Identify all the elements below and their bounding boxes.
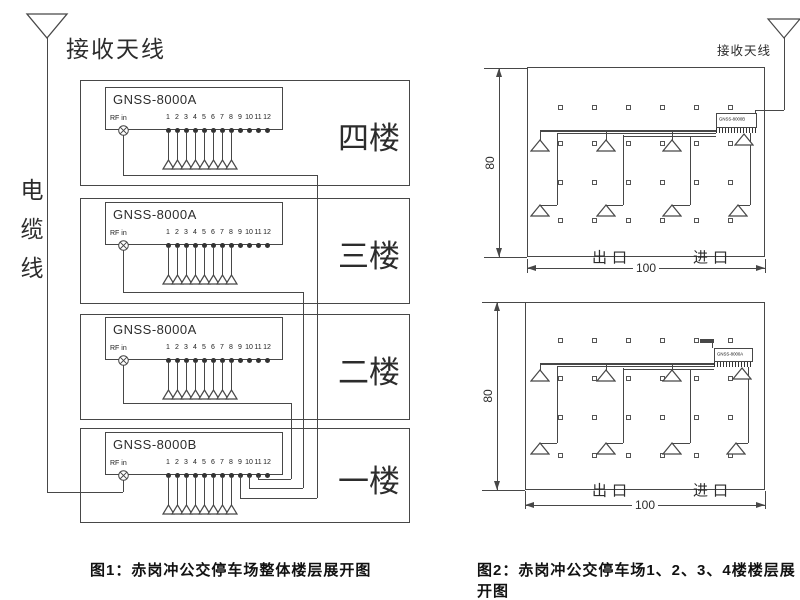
cable-line bbox=[258, 479, 291, 480]
antenna-drop-line bbox=[712, 342, 713, 348]
antenna-drop-line bbox=[204, 362, 205, 391]
trunk-cable bbox=[540, 130, 716, 132]
column-dot bbox=[558, 338, 563, 343]
entrance-label: 进口 bbox=[693, 247, 733, 268]
cable-label: 电缆线 bbox=[13, 178, 47, 295]
port-dot bbox=[256, 358, 261, 363]
antenna-drop-line bbox=[231, 477, 232, 506]
cable-line bbox=[317, 175, 318, 498]
antenna-drop-line bbox=[557, 133, 558, 205]
port-dot bbox=[265, 128, 270, 133]
column-dot bbox=[592, 105, 597, 110]
antenna-icon bbox=[662, 139, 682, 152]
column-dot bbox=[728, 105, 733, 110]
column-dot bbox=[694, 141, 699, 146]
column-dot bbox=[660, 180, 665, 185]
antenna-icon bbox=[530, 139, 550, 152]
figure2-caption: 图2：赤岗冲公交停车场1、2、3、4楼楼层展开图 bbox=[477, 559, 800, 600]
antenna-drop-line bbox=[204, 247, 205, 276]
antenna-icon bbox=[596, 204, 616, 217]
dimension-arrow-icon bbox=[756, 265, 765, 271]
column-dot bbox=[626, 415, 631, 420]
column-dot bbox=[626, 338, 631, 343]
antenna-drop-line bbox=[213, 132, 214, 161]
column-dot bbox=[558, 105, 563, 110]
column-dot bbox=[592, 218, 597, 223]
column-dot bbox=[660, 105, 665, 110]
dimension-ext-line bbox=[765, 259, 766, 273]
dimension-arrow-icon bbox=[494, 302, 500, 311]
gnss-unit-name: GNSS-8000A bbox=[113, 92, 197, 107]
gnss-unit-name: GNSS-8000B bbox=[719, 118, 745, 122]
column-dot bbox=[592, 180, 597, 185]
antenna-feed-line bbox=[784, 37, 785, 110]
antenna-drop-line bbox=[700, 342, 712, 343]
port-dot bbox=[238, 358, 243, 363]
floor-name-3F: 三楼 bbox=[334, 231, 404, 276]
antenna-icon bbox=[596, 139, 616, 152]
gnss-unit-name: GNSS-8000B bbox=[113, 437, 197, 452]
trunk-cable bbox=[557, 366, 714, 367]
antenna-drop-line bbox=[557, 366, 558, 443]
column-dot bbox=[728, 180, 733, 185]
rf-in-label: RF in bbox=[110, 460, 127, 467]
antenna-icon bbox=[225, 159, 238, 170]
antenna-feed-line bbox=[755, 110, 784, 111]
width-dimension: 100 bbox=[633, 261, 659, 275]
antenna-drop-line bbox=[222, 362, 223, 391]
gnss-unit-name: GNSS-8000A bbox=[113, 207, 197, 222]
cable-line bbox=[123, 175, 317, 176]
floor-name-4F: 四楼 bbox=[334, 113, 404, 158]
antenna-drop-line bbox=[213, 247, 214, 276]
port-dot bbox=[247, 243, 252, 248]
dimension-arrow-icon bbox=[494, 481, 500, 490]
antenna-drop-line bbox=[204, 132, 205, 161]
antenna-drop-line bbox=[195, 477, 196, 506]
antenna-icon bbox=[225, 389, 238, 400]
antenna-drop-line bbox=[186, 247, 187, 276]
column-dot bbox=[694, 376, 699, 381]
trunk-cable bbox=[557, 133, 716, 134]
column-dot bbox=[728, 415, 733, 420]
antenna-drop-line bbox=[168, 477, 169, 506]
column-dot bbox=[728, 218, 733, 223]
receive-antenna-label: 接收天线 bbox=[66, 30, 166, 64]
cable-line bbox=[123, 480, 124, 492]
dimension-line bbox=[499, 68, 500, 257]
height-dimension: 80 bbox=[483, 153, 497, 172]
antenna-drop-line bbox=[177, 477, 178, 506]
cable-line bbox=[123, 403, 291, 404]
antenna-drop-line bbox=[623, 135, 624, 205]
floor-name-2F: 二楼 bbox=[334, 347, 404, 392]
antenna-drop-line bbox=[168, 132, 169, 161]
exit-label: 出口 bbox=[592, 480, 632, 501]
antenna-drop-line bbox=[222, 132, 223, 161]
dimension-arrow-icon bbox=[496, 68, 502, 77]
cable-line bbox=[47, 492, 123, 493]
column-dot bbox=[558, 180, 563, 185]
roof-antenna-icon bbox=[766, 17, 800, 41]
antenna-drop-line bbox=[231, 132, 232, 161]
antenna-drop-line bbox=[690, 136, 691, 205]
floorplan-outline-bottom bbox=[525, 302, 765, 490]
column-dot bbox=[592, 338, 597, 343]
port-dot bbox=[256, 243, 261, 248]
dimension-arrow-icon bbox=[756, 502, 765, 508]
dimension-ext-line bbox=[482, 490, 525, 491]
cable-line bbox=[123, 292, 303, 293]
antenna-drop-line bbox=[195, 132, 196, 161]
antenna-drop-line bbox=[213, 362, 214, 391]
antenna-drop-line bbox=[222, 247, 223, 276]
antenna-icon bbox=[530, 204, 550, 217]
column-dot bbox=[694, 453, 699, 458]
cable-line bbox=[47, 38, 48, 492]
dimension-ext-line bbox=[484, 257, 527, 258]
receive-antenna-label: 接收天线 bbox=[717, 40, 771, 59]
column-dot bbox=[558, 453, 563, 458]
rf-in-label: RF in bbox=[110, 345, 127, 352]
cable-line bbox=[123, 365, 124, 403]
port-dot bbox=[238, 243, 243, 248]
height-dimension: 80 bbox=[481, 386, 495, 405]
antenna-icon bbox=[662, 442, 682, 455]
figure1-caption: 图1：赤岗冲公交停车场整体楼层展开图 bbox=[90, 559, 371, 580]
port-dot bbox=[265, 358, 270, 363]
antenna-drop-line bbox=[177, 132, 178, 161]
dimension-line bbox=[497, 302, 498, 490]
column-dot bbox=[694, 338, 699, 343]
antenna-icon bbox=[662, 369, 682, 382]
antenna-drop-line bbox=[168, 247, 169, 276]
cable-line bbox=[123, 135, 124, 175]
column-dot bbox=[660, 415, 665, 420]
column-dot bbox=[694, 105, 699, 110]
antenna-icon bbox=[596, 369, 616, 382]
column-dot bbox=[558, 415, 563, 420]
column-dot bbox=[660, 218, 665, 223]
antenna-drop-line bbox=[231, 247, 232, 276]
entrance-label: 进口 bbox=[693, 480, 733, 501]
trunk-cable bbox=[540, 363, 714, 365]
antenna-drop-line bbox=[186, 362, 187, 391]
rf-in-label: RF in bbox=[110, 230, 127, 237]
antenna-drop-line bbox=[204, 477, 205, 506]
trunk-cable bbox=[623, 136, 716, 137]
antenna-icon bbox=[225, 274, 238, 285]
port-number: 12 bbox=[260, 344, 274, 351]
column-dot bbox=[728, 141, 733, 146]
antenna-drop-line bbox=[195, 247, 196, 276]
antenna-icon bbox=[596, 442, 616, 455]
dimension-arrow-icon bbox=[525, 502, 534, 508]
roof-antenna-icon bbox=[25, 12, 71, 42]
dimension-arrow-icon bbox=[527, 265, 536, 271]
antenna-icon bbox=[662, 204, 682, 217]
column-dot bbox=[626, 218, 631, 223]
cable-line bbox=[240, 498, 317, 499]
column-dot bbox=[626, 180, 631, 185]
port-dot bbox=[265, 243, 270, 248]
column-dot bbox=[626, 453, 631, 458]
cable-line bbox=[303, 292, 304, 488]
antenna-icon bbox=[732, 367, 752, 380]
antenna-drop-line bbox=[186, 132, 187, 161]
cable-line bbox=[291, 403, 292, 479]
rf-in-label: RF in bbox=[110, 115, 127, 122]
antenna-icon bbox=[225, 504, 238, 515]
antenna-drop-line bbox=[168, 362, 169, 391]
dimension-arrow-icon bbox=[496, 248, 502, 257]
column-dot bbox=[592, 415, 597, 420]
column-dot bbox=[626, 376, 631, 381]
antenna-drop-line bbox=[231, 362, 232, 391]
column-dot bbox=[694, 180, 699, 185]
column-dot bbox=[694, 218, 699, 223]
exit-label: 出口 bbox=[592, 247, 632, 268]
floor-name-1F: 一楼 bbox=[334, 456, 404, 501]
port-dot bbox=[265, 473, 270, 478]
column-dot bbox=[558, 141, 563, 146]
port-dot bbox=[247, 358, 252, 363]
port-dot bbox=[247, 128, 252, 133]
gnss-unit-name: GNSS-8000A bbox=[113, 322, 197, 337]
gnss-unit-name: GNSS-8000A bbox=[717, 353, 743, 357]
cable-line bbox=[249, 488, 303, 489]
antenna-drop-line bbox=[213, 477, 214, 506]
dimension-ext-line bbox=[765, 491, 766, 509]
port-number: 12 bbox=[260, 114, 274, 121]
antenna-icon bbox=[726, 442, 746, 455]
column-dot bbox=[558, 218, 563, 223]
antenna-icon bbox=[530, 442, 550, 455]
antenna-icon bbox=[728, 204, 748, 217]
column-dot bbox=[626, 141, 631, 146]
antenna-drop-line bbox=[222, 477, 223, 506]
column-dot bbox=[626, 105, 631, 110]
port-dot bbox=[256, 128, 261, 133]
column-dot bbox=[558, 376, 563, 381]
port-number: 12 bbox=[260, 229, 274, 236]
width-dimension: 100 bbox=[632, 498, 658, 512]
cable-line bbox=[240, 476, 241, 498]
port-dot bbox=[238, 128, 243, 133]
column-dot bbox=[728, 338, 733, 343]
floorplan-outline-top bbox=[527, 67, 765, 257]
column-dot bbox=[660, 338, 665, 343]
antenna-drop-line bbox=[690, 369, 691, 443]
cable-line bbox=[123, 250, 124, 292]
antenna-icon bbox=[530, 369, 550, 382]
antenna-drop-line bbox=[623, 368, 624, 443]
antenna-drop-line bbox=[177, 362, 178, 391]
dimension-ext-line bbox=[482, 302, 525, 303]
schematic-canvas: 接收天线 电缆线 GNSS-8000A GNSS-8000A GNSS-8000… bbox=[0, 0, 800, 600]
antenna-drop-line bbox=[186, 477, 187, 506]
antenna-drop-line bbox=[195, 362, 196, 391]
dimension-ext-line bbox=[484, 68, 527, 69]
port-number: 12 bbox=[260, 459, 274, 466]
antenna-drop-line bbox=[177, 247, 178, 276]
column-dot bbox=[694, 415, 699, 420]
antenna-icon bbox=[734, 133, 754, 146]
cable-line bbox=[249, 476, 250, 488]
